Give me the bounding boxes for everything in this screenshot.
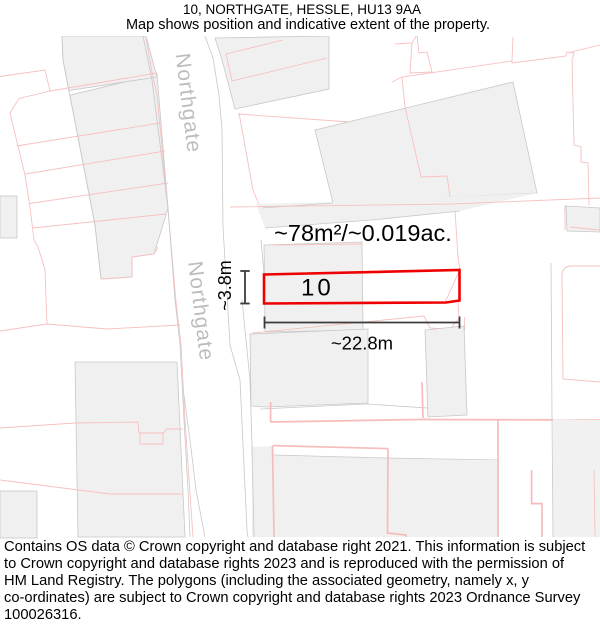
svg-text:~3.8m: ~3.8m	[215, 260, 235, 311]
svg-text:~22.8m: ~22.8m	[331, 333, 393, 354]
svg-text:~78m²/~0.019ac.: ~78m²/~0.019ac.	[274, 220, 452, 246]
svg-text:10: 10	[301, 275, 334, 302]
